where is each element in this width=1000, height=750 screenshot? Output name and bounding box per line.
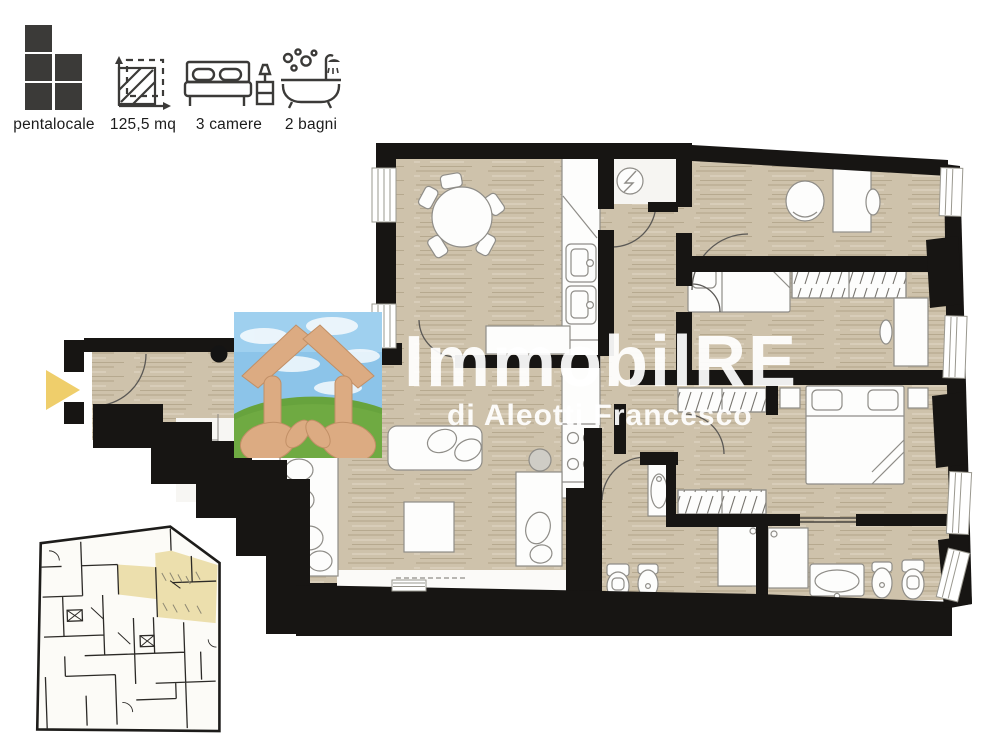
light-point bbox=[211, 346, 228, 363]
listing-floorplan-page: ImmobilRE di Aleotti Francesco pentaloca… bbox=[0, 0, 1000, 750]
legend: pentalocale 125,5 mq bbox=[0, 0, 370, 145]
legend-label: pentalocale bbox=[4, 116, 104, 134]
house-hands-photo bbox=[234, 312, 382, 458]
legend-label: 3 camere bbox=[182, 116, 276, 134]
pentalocale-icon bbox=[24, 24, 84, 112]
legend-item-area: 125,5 mq bbox=[102, 20, 184, 134]
boiler-symbol bbox=[617, 168, 643, 194]
legend-label: 2 bagni bbox=[272, 116, 350, 134]
legend-item-type: pentalocale bbox=[4, 20, 104, 134]
legend-label: 125,5 mq bbox=[102, 116, 184, 134]
bath-icon bbox=[278, 48, 344, 112]
bed-icon bbox=[183, 60, 275, 112]
area-icon bbox=[111, 50, 175, 112]
building-key-plan bbox=[18, 518, 248, 750]
legend-item-rooms: 3 camere bbox=[182, 20, 276, 134]
legend-item-baths: 2 bagni bbox=[272, 20, 350, 134]
